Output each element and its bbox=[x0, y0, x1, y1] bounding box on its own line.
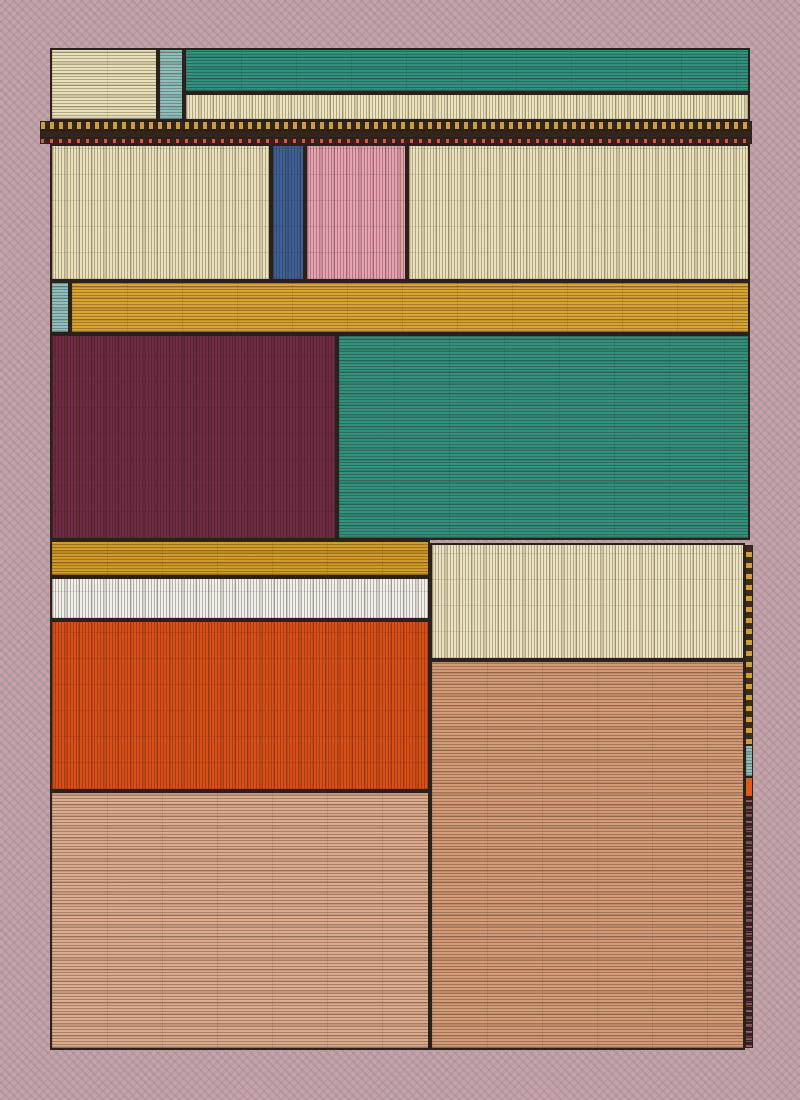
salmon-block-left bbox=[50, 791, 430, 1050]
gold-band-teal-cap bbox=[50, 281, 70, 334]
top-cream-fringe-band bbox=[184, 93, 750, 121]
second-row-cream-right bbox=[407, 144, 750, 281]
upper-gold-band bbox=[70, 281, 750, 334]
edge-strip-orange bbox=[745, 777, 753, 797]
white-fringe-band bbox=[50, 577, 430, 620]
edge-strip-gold-dash bbox=[745, 545, 753, 745]
salmon-block-right bbox=[430, 660, 745, 1050]
maroon-block bbox=[50, 334, 337, 540]
second-row-cream-left bbox=[50, 144, 271, 281]
top-teal-band bbox=[184, 48, 750, 93]
top-teal-strip bbox=[158, 48, 184, 121]
second-row-pink-block bbox=[305, 144, 407, 281]
edge-strip-teal bbox=[745, 745, 753, 777]
lower-gold-band bbox=[50, 540, 430, 577]
edge-strip-dark bbox=[745, 797, 753, 1048]
artwork-canvas bbox=[0, 0, 800, 1100]
second-row-blue-block bbox=[271, 144, 305, 281]
orange-block bbox=[50, 620, 430, 791]
large-teal-block bbox=[337, 334, 750, 540]
divider-dark-band bbox=[40, 130, 752, 138]
top-left-cream-block bbox=[50, 48, 158, 121]
divider-gold-dash-band bbox=[40, 121, 752, 130]
lower-right-cream-block bbox=[430, 543, 745, 660]
